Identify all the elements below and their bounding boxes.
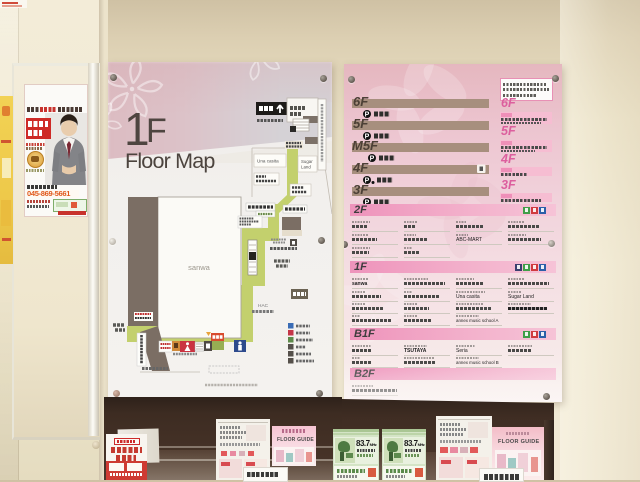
svg-text:P: P — [365, 112, 370, 119]
svg-text:HAC: HAC — [258, 303, 269, 309]
svg-text:Una casita: Una casita — [257, 159, 279, 164]
svg-text:P: P — [370, 156, 375, 163]
svg-text:P: P — [365, 178, 370, 185]
svg-text:Land: Land — [301, 165, 311, 170]
svg-text:P: P — [365, 134, 370, 141]
svg-text:sanwa: sanwa — [188, 263, 211, 272]
svg-text:Sugar: Sugar — [301, 159, 313, 164]
